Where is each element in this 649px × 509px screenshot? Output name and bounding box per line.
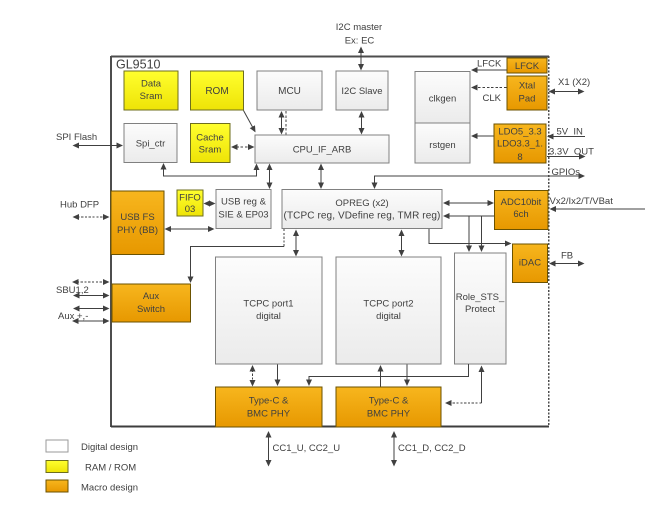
- svg-text:rstgen: rstgen: [429, 140, 455, 151]
- svg-text:RAM / ROM: RAM / ROM: [85, 463, 136, 474]
- svg-text:Type-C &: Type-C &: [369, 396, 409, 407]
- svg-text:LDO3.3_1.: LDO3.3_1.: [497, 139, 543, 150]
- svg-text:Sram: Sram: [199, 145, 222, 156]
- svg-text:Protect: Protect: [465, 304, 495, 315]
- svg-text:(TCPC reg, VDefine reg, TMR re: (TCPC reg, VDefine reg, TMR reg): [284, 211, 441, 222]
- svg-text:SIE & EP03: SIE & EP03: [218, 210, 268, 221]
- svg-text:SBU1,2: SBU1,2: [56, 285, 89, 296]
- svg-text:PHY (BB): PHY (BB): [117, 225, 158, 236]
- svg-text:Ex: EC: Ex: EC: [345, 36, 375, 47]
- svg-text:CLK: CLK: [483, 93, 502, 104]
- svg-text:Aux: Aux: [143, 291, 160, 302]
- svg-text:3.3V_OUT: 3.3V_OUT: [549, 147, 594, 158]
- svg-text:FIFO: FIFO: [179, 193, 201, 204]
- svg-text:clkgen: clkgen: [429, 94, 456, 105]
- svg-text:CC1_U, CC2_U: CC1_U, CC2_U: [273, 443, 341, 454]
- svg-text:USB reg &: USB reg &: [221, 197, 267, 208]
- svg-text:Aux +,-: Aux +,-: [58, 311, 88, 322]
- svg-text:GL9510: GL9510: [116, 58, 161, 72]
- svg-text:iDAC: iDAC: [519, 258, 541, 269]
- svg-text:digital: digital: [376, 311, 401, 322]
- svg-text:BMC PHY: BMC PHY: [367, 409, 411, 420]
- svg-text:Vx2/Ix2/T/VBat: Vx2/Ix2/T/VBat: [550, 196, 614, 207]
- svg-text:GPIOs: GPIOs: [552, 167, 581, 178]
- svg-text:LDO5_3.3: LDO5_3.3: [498, 127, 541, 138]
- svg-text:Data: Data: [141, 79, 162, 90]
- svg-text:Digital design: Digital design: [81, 442, 138, 453]
- svg-text:8: 8: [517, 152, 522, 163]
- svg-text:6ch: 6ch: [513, 209, 528, 220]
- svg-text:CC1_D, CC2_D: CC1_D, CC2_D: [398, 443, 466, 454]
- svg-text:I2C master: I2C master: [336, 22, 382, 33]
- svg-text:USB FS: USB FS: [120, 212, 154, 223]
- svg-text:Hub DFP: Hub DFP: [60, 200, 99, 211]
- svg-text:Cache: Cache: [196, 133, 223, 144]
- svg-text:CPU_IF_ARB: CPU_IF_ARB: [293, 145, 352, 156]
- svg-text:FB: FB: [561, 251, 573, 262]
- svg-text:5V_IN: 5V_IN: [557, 127, 584, 138]
- svg-text:Sram: Sram: [140, 91, 163, 102]
- svg-text:I2C Slave: I2C Slave: [341, 86, 382, 97]
- svg-text:OPREG (x2): OPREG (x2): [335, 198, 388, 209]
- svg-text:Pad: Pad: [519, 94, 536, 105]
- svg-text:TCPC port2: TCPC port2: [363, 299, 413, 310]
- svg-text:Switch: Switch: [137, 304, 165, 315]
- svg-text:Macro design: Macro design: [81, 483, 138, 494]
- svg-text:Xtal: Xtal: [519, 81, 535, 92]
- svg-text:Spi_ctr: Spi_ctr: [136, 139, 166, 150]
- svg-text:Role_STS_: Role_STS_: [456, 292, 505, 303]
- svg-text:SPI Flash: SPI Flash: [56, 132, 97, 143]
- svg-text:ROM: ROM: [205, 86, 228, 97]
- svg-text:LFCK: LFCK: [477, 59, 502, 70]
- svg-text:TCPC port1: TCPC port1: [243, 299, 293, 310]
- svg-text:digital: digital: [256, 311, 281, 322]
- svg-text:Type-C &: Type-C &: [249, 396, 289, 407]
- svg-text:LFCK: LFCK: [515, 61, 540, 72]
- svg-text:03: 03: [185, 204, 196, 215]
- svg-text:MCU: MCU: [278, 86, 301, 97]
- svg-text:X1 (X2): X1 (X2): [558, 77, 590, 88]
- svg-text:ADC10bit: ADC10bit: [501, 197, 542, 208]
- svg-text:BMC PHY: BMC PHY: [247, 409, 291, 420]
